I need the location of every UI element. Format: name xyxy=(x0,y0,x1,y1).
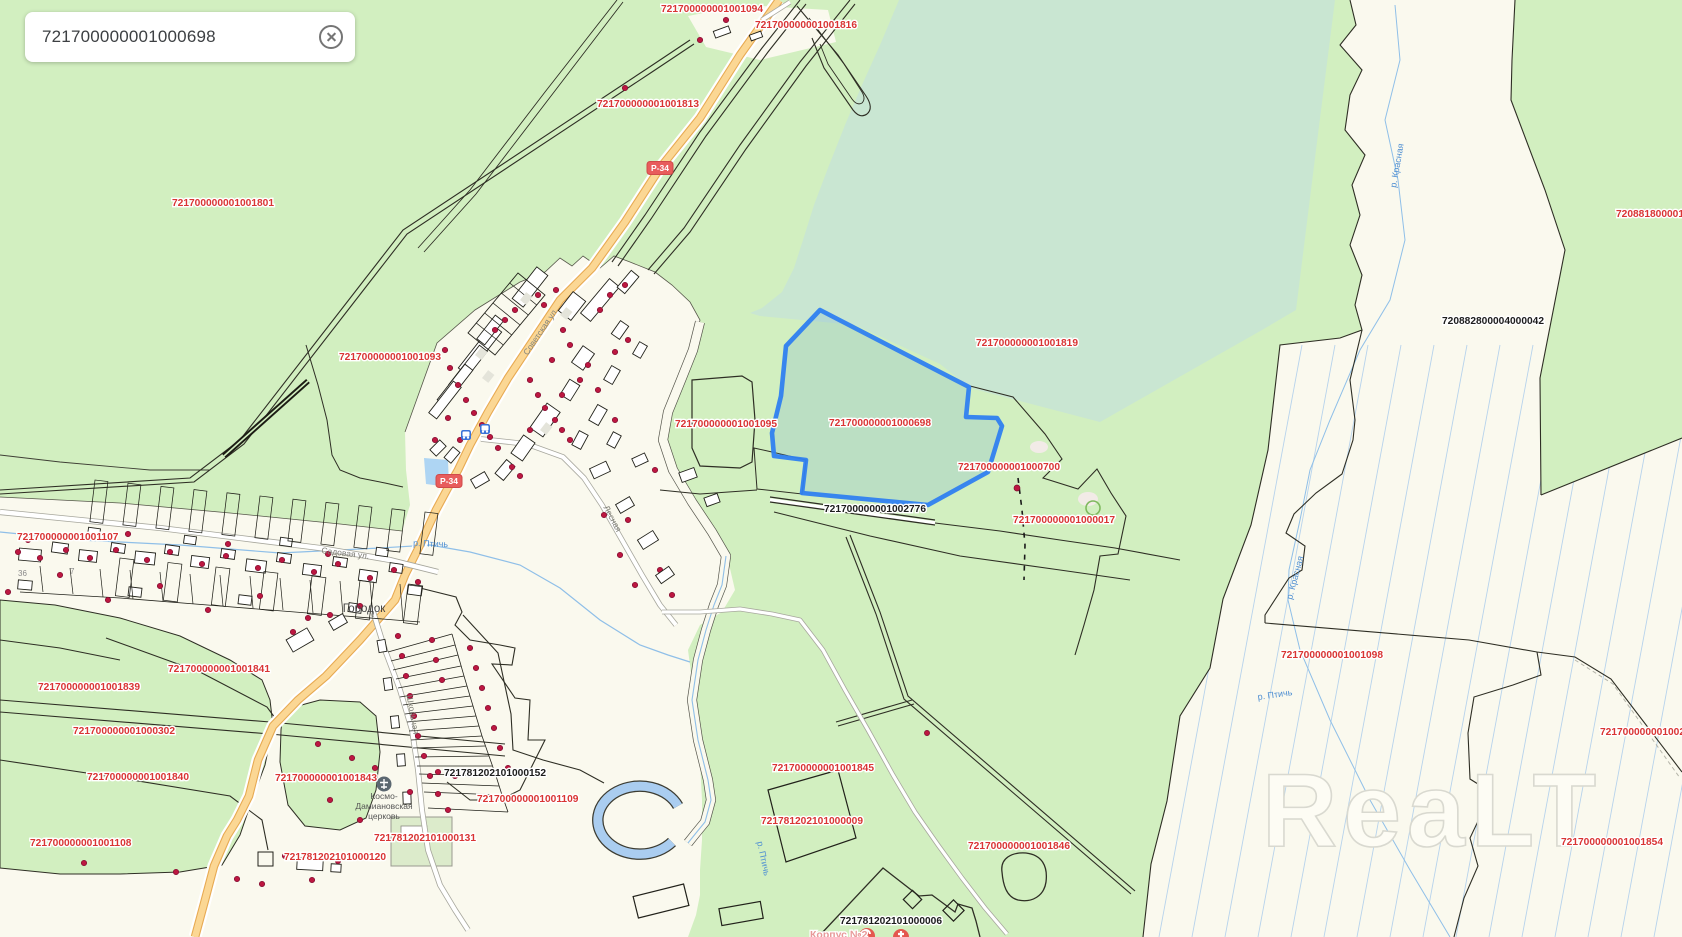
svg-text:721700000001000700: 721700000001000700 xyxy=(958,462,1060,473)
svg-text:721700000001002776: 721700000001002776 xyxy=(824,504,926,515)
svg-text:721700000001001107: 721700000001001107 xyxy=(17,532,119,543)
svg-text:721781202101000009: 721781202101000009 xyxy=(761,816,863,827)
svg-text:721781202101000152: 721781202101000152 xyxy=(444,768,546,779)
svg-text:721781202101000006: 721781202101000006 xyxy=(840,916,942,927)
svg-text:721700000001001840: 721700000001001840 xyxy=(87,772,189,783)
svg-text:721700000001001819: 721700000001001819 xyxy=(976,338,1078,349)
svg-text:721700000001000017: 721700000001000017 xyxy=(1013,515,1115,526)
svg-text:721700000001001854: 721700000001001854 xyxy=(1561,837,1663,848)
svg-text:721700000001001843: 721700000001001843 xyxy=(275,773,377,784)
svg-text:721700000001000302: 721700000001000302 xyxy=(73,726,175,737)
svg-text:р. Птичь: р. Птичь xyxy=(413,538,449,549)
svg-text:Р-34: Р-34 xyxy=(440,476,458,486)
svg-text:Р-34: Р-34 xyxy=(651,163,669,173)
svg-text:721700000001001841: 721700000001001841 xyxy=(168,664,270,675)
svg-text:721700000001001816: 721700000001001816 xyxy=(755,20,857,31)
svg-text:ReaLT: ReaLT xyxy=(1262,753,1602,869)
svg-text:720882800004000042: 720882800004000042 xyxy=(1442,316,1544,327)
svg-text:7: 7 xyxy=(70,567,75,576)
svg-text:721781202101000131: 721781202101000131 xyxy=(374,833,476,844)
svg-text:721781202101000120: 721781202101000120 xyxy=(284,852,386,863)
svg-text:Городок: Городок xyxy=(343,603,386,615)
svg-text:721700000001001095: 721700000001001095 xyxy=(675,419,777,430)
svg-text:Космо-: Космо- xyxy=(370,791,397,801)
svg-text:721700000001001093: 721700000001001093 xyxy=(339,352,441,363)
svg-text:церковь: церковь xyxy=(368,811,400,821)
svg-text:721700000001001839: 721700000001001839 xyxy=(38,682,140,693)
svg-text:721700000001001846: 721700000001001846 xyxy=(968,841,1070,852)
svg-text:721700000001001845: 721700000001001845 xyxy=(772,763,874,774)
svg-text:720881800001234567: 720881800001234567 xyxy=(1616,209,1682,220)
svg-text:721700000001002134: 721700000001002134 xyxy=(1600,727,1682,738)
svg-text:Дамиановская: Дамиановская xyxy=(355,801,413,811)
svg-text:721700000001001098: 721700000001001098 xyxy=(1281,650,1383,661)
svg-text:721700000001001094: 721700000001001094 xyxy=(661,4,763,15)
svg-text:721700000001001109: 721700000001001109 xyxy=(477,794,579,805)
svg-text:721700000001001108: 721700000001001108 xyxy=(30,838,132,849)
svg-text:721700000001001801: 721700000001001801 xyxy=(172,198,274,209)
svg-text:721700000001001813: 721700000001001813 xyxy=(597,99,699,110)
svg-text:36: 36 xyxy=(18,569,27,578)
svg-text:721700000001000698: 721700000001000698 xyxy=(829,418,931,429)
svg-text:Корпус №2: Корпус №2 xyxy=(810,929,868,937)
